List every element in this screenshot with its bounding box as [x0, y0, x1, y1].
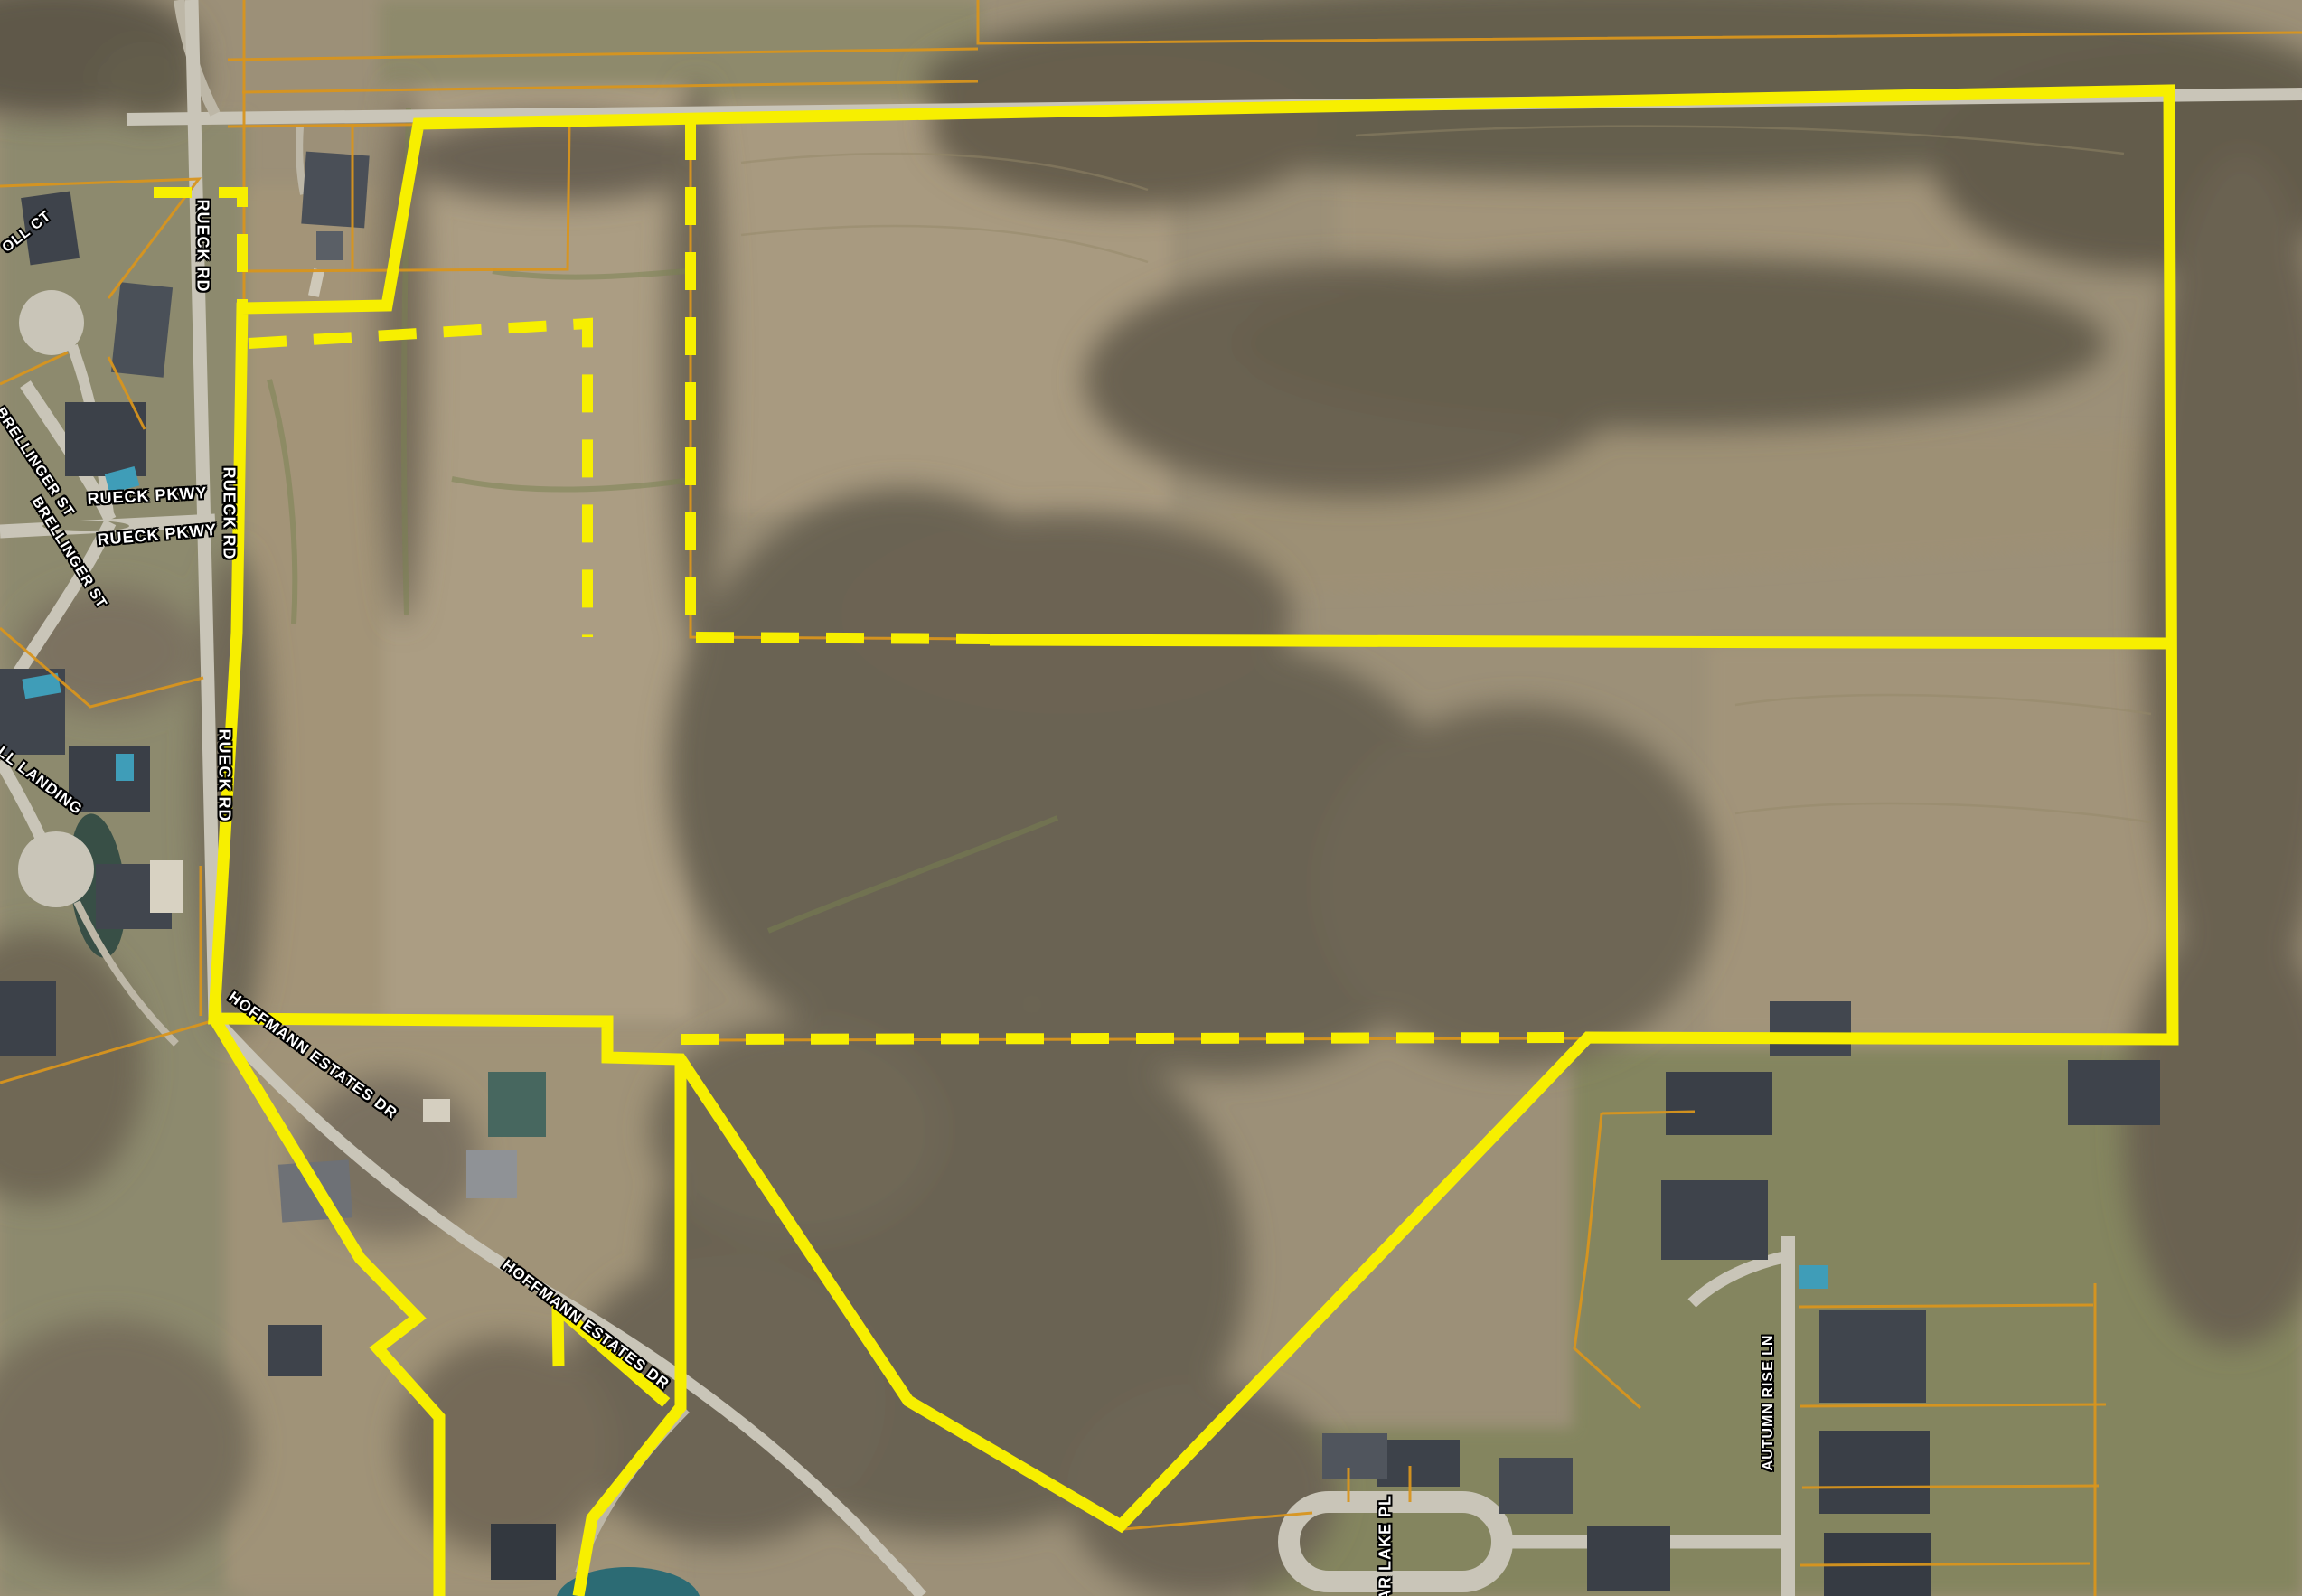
building — [1499, 1458, 1573, 1514]
road-label-rueck-rd-mid: RUECK RD — [220, 466, 239, 559]
aerial-imagery — [0, 0, 2302, 1596]
building — [0, 981, 56, 1056]
road-label-autumn-rise-ln: AUTUMN RISE LN — [1761, 1335, 1777, 1471]
building — [268, 1325, 322, 1376]
driveway-homestead — [299, 127, 304, 194]
shed — [423, 1099, 450, 1122]
satellite-parcel-map[interactable]: RUECK RD OLL CT BRELLINGER ST BRELLINGER… — [0, 0, 2302, 1596]
road-label-rueck-rd-north: RUECK RD — [193, 199, 212, 292]
building — [1587, 1526, 1670, 1591]
building — [491, 1524, 556, 1580]
building — [1666, 1072, 1772, 1135]
building — [1770, 1001, 1851, 1056]
building — [1661, 1180, 1768, 1260]
building — [1377, 1440, 1460, 1487]
cul-de-sac-ll-landing — [18, 831, 94, 907]
road-label-briar-lake-pl: IAR LAKE PL — [1377, 1495, 1395, 1596]
building — [1322, 1433, 1387, 1479]
building — [2068, 1060, 2160, 1125]
swimming-pool — [1799, 1265, 1828, 1289]
building — [111, 282, 173, 378]
building-homestead — [301, 152, 369, 229]
swimming-pool — [116, 754, 134, 781]
building — [1819, 1431, 1930, 1514]
terrain-layer — [0, 0, 2302, 1596]
building — [466, 1150, 517, 1198]
shed — [316, 231, 343, 260]
road-label-rueck-rd-south: RUECK RD — [215, 728, 234, 821]
building-green-roof — [488, 1072, 546, 1137]
building — [65, 402, 146, 476]
building — [1819, 1310, 1926, 1403]
patio — [150, 860, 183, 913]
boundary-divider-solid — [990, 640, 2173, 643]
